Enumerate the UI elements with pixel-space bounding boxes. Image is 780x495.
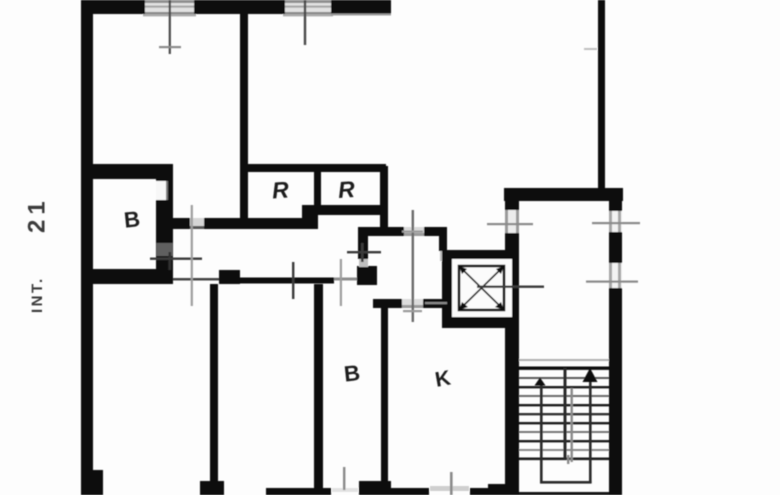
svg-text:R: R — [337, 176, 356, 203]
svg-text:R: R — [271, 176, 290, 203]
svg-text:B: B — [343, 360, 361, 387]
svg-text:B: B — [123, 206, 141, 233]
svg-text:K: K — [433, 367, 452, 392]
svg-text:21: 21 — [24, 196, 51, 233]
svg-text:INT.: INT. — [29, 276, 46, 313]
